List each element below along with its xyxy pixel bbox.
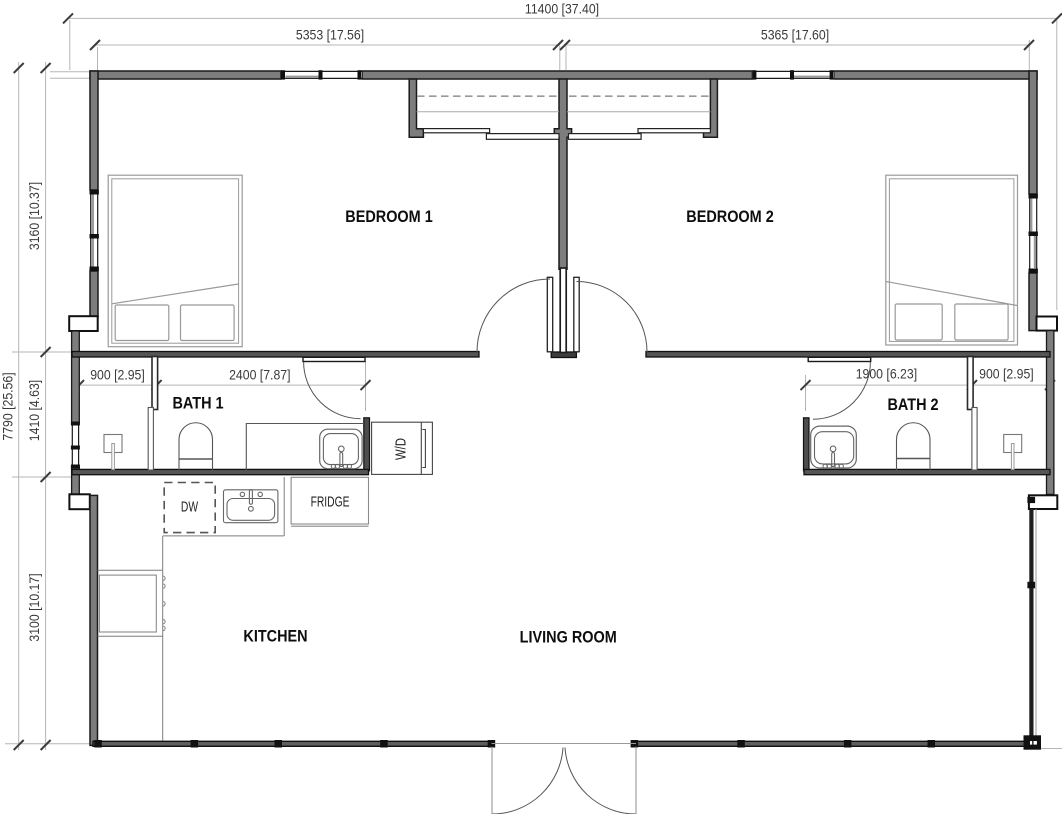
svg-text:900 [2.95]: 900 [2.95] <box>90 367 145 383</box>
svg-text:900 [2.95]: 900 [2.95] <box>979 366 1034 382</box>
svg-text:KITCHEN: KITCHEN <box>243 627 307 645</box>
svg-text:DW: DW <box>181 499 198 515</box>
svg-text:1410 [4.63]: 1410 [4.63] <box>26 380 42 441</box>
svg-text:3160 [10.37]: 3160 [10.37] <box>26 182 42 250</box>
svg-text:BATH 1: BATH 1 <box>172 394 223 412</box>
svg-text:5365 [17.60]: 5365 [17.60] <box>761 27 829 43</box>
svg-text:1900 [6.23]: 1900 [6.23] <box>856 366 917 382</box>
svg-text:BEDROOM 2: BEDROOM 2 <box>686 208 774 226</box>
svg-text:W/D: W/D <box>392 438 409 460</box>
svg-text:11400 [37.40]: 11400 [37.40] <box>525 1 599 17</box>
svg-text:3100 [10.17]: 3100 [10.17] <box>26 573 42 641</box>
svg-text:LIVING ROOM: LIVING ROOM <box>520 628 617 646</box>
svg-text:7790 [25.56]: 7790 [25.56] <box>0 372 16 440</box>
svg-text:BATH 2: BATH 2 <box>887 396 938 414</box>
svg-text:FRIDGE: FRIDGE <box>311 494 350 510</box>
svg-text:BEDROOM 1: BEDROOM 1 <box>345 208 433 226</box>
svg-text:2400 [7.87]: 2400 [7.87] <box>229 367 290 383</box>
svg-text:5353 [17.56]: 5353 [17.56] <box>296 27 364 43</box>
